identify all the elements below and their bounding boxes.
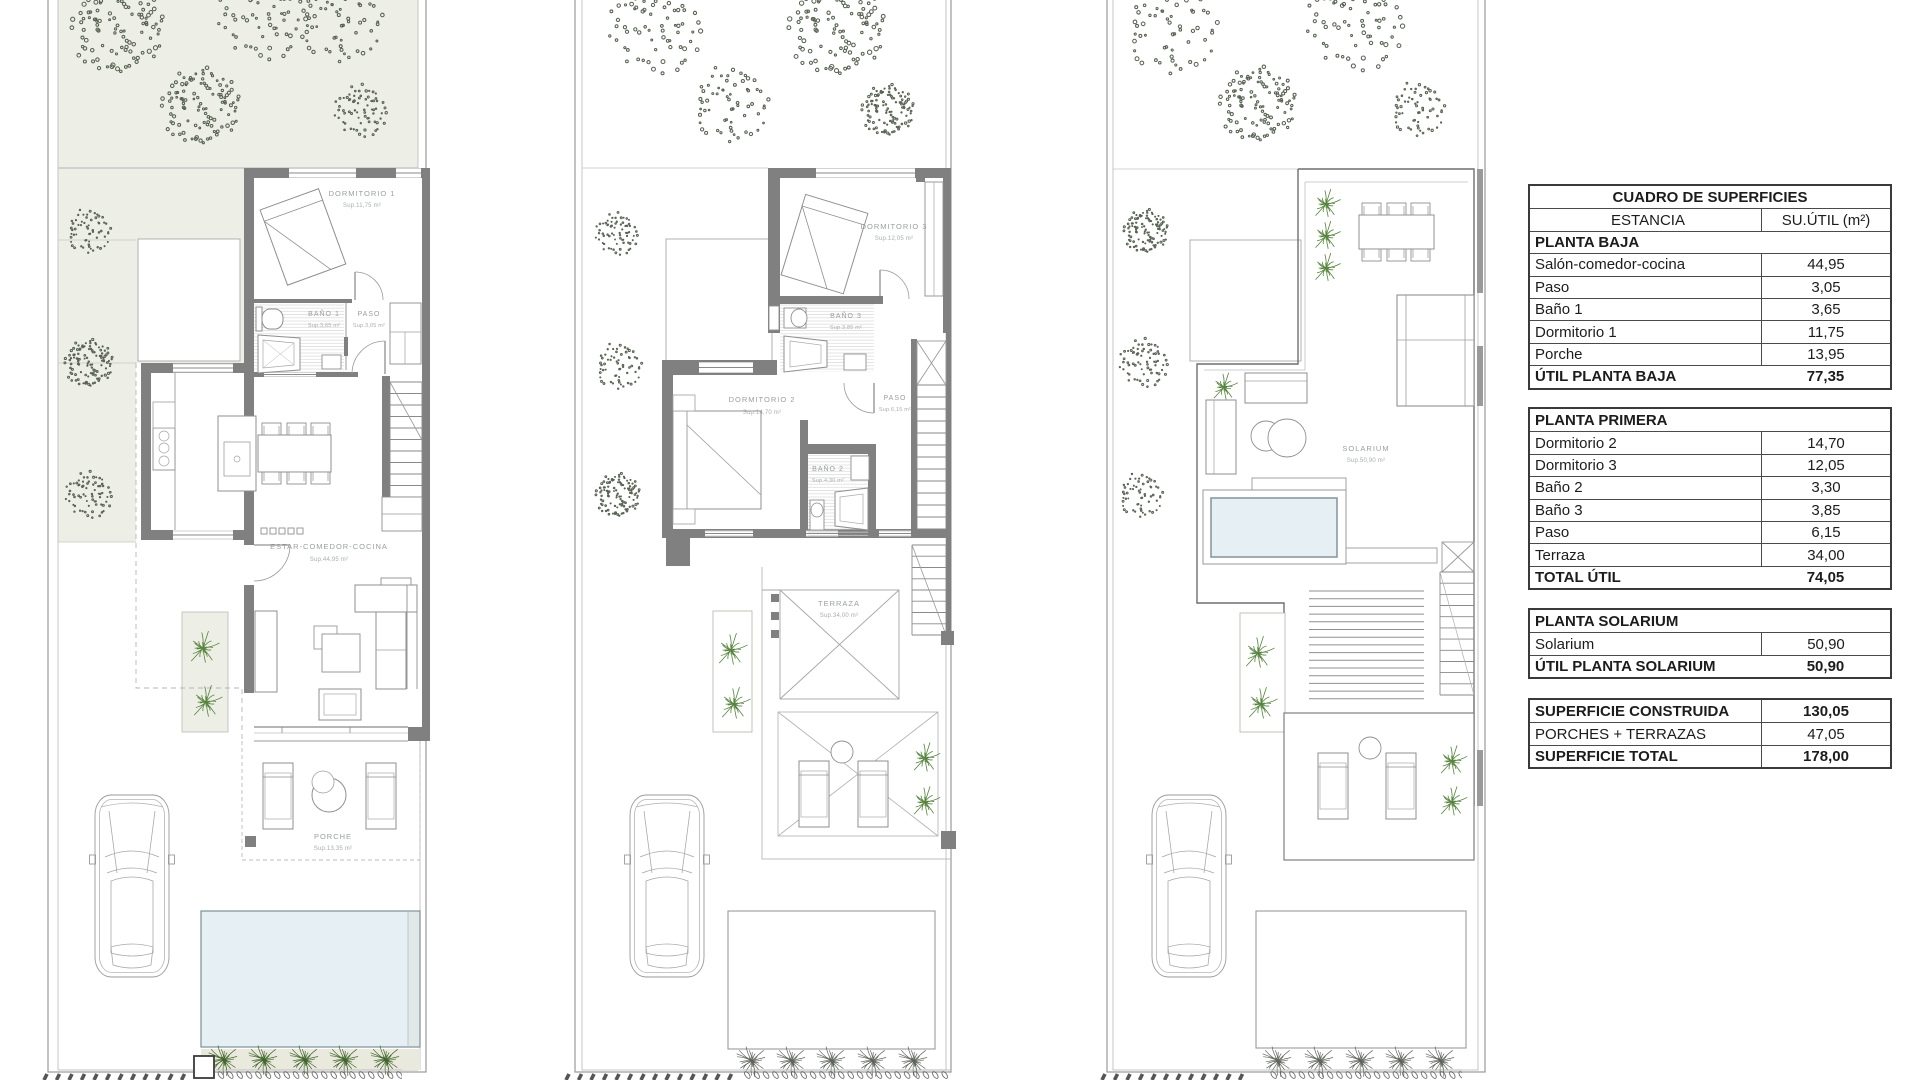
svg-text:Sup.50,90 m²: Sup.50,90 m² [1347,458,1385,464]
svg-text:DORMITORIO 1: DORMITORIO 1 [329,189,396,198]
svg-text:Sup.3,85 m²: Sup.3,85 m² [830,325,862,331]
svg-text:BAÑO 2: BAÑO 2 [812,464,844,473]
svg-text:Sup.6,15 m²: Sup.6,15 m² [879,407,911,413]
svg-text:PASO: PASO [358,311,381,318]
svg-text:Sup.4,30 m²: Sup.4,30 m² [812,478,844,484]
svg-text:Sup.14,70 m²: Sup.14,70 m² [743,410,781,416]
svg-text:Sup.3,05 m²: Sup.3,05 m² [353,323,385,329]
svg-text:ESTAR-COMEDOR-COCINA: ESTAR-COMEDOR-COCINA [270,542,388,551]
svg-text:Sup.11,75 m²: Sup.11,75 m² [343,203,381,209]
svg-text:SOLARIUM: SOLARIUM [1342,444,1389,453]
svg-text:DORMITORIO 2: DORMITORIO 2 [729,395,796,404]
svg-text:Sup.13,35 m²: Sup.13,35 m² [314,846,352,852]
svg-text:DORMITORIO 3: DORMITORIO 3 [861,222,928,231]
svg-text:BAÑO 1: BAÑO 1 [308,309,340,318]
svg-text:Sup.44,95 m²: Sup.44,95 m² [310,557,348,563]
svg-text:Sup.34,00 m²: Sup.34,00 m² [820,613,858,619]
svg-text:PASO: PASO [884,395,907,402]
svg-text:TERRAZA: TERRAZA [818,599,860,608]
svg-text:BAÑO 3: BAÑO 3 [830,311,862,320]
svg-text:PORCHE: PORCHE [314,832,352,841]
svg-text:Sup.12,05 m²: Sup.12,05 m² [875,236,913,242]
svg-text:Sup.3,65 m²: Sup.3,65 m² [308,323,340,329]
